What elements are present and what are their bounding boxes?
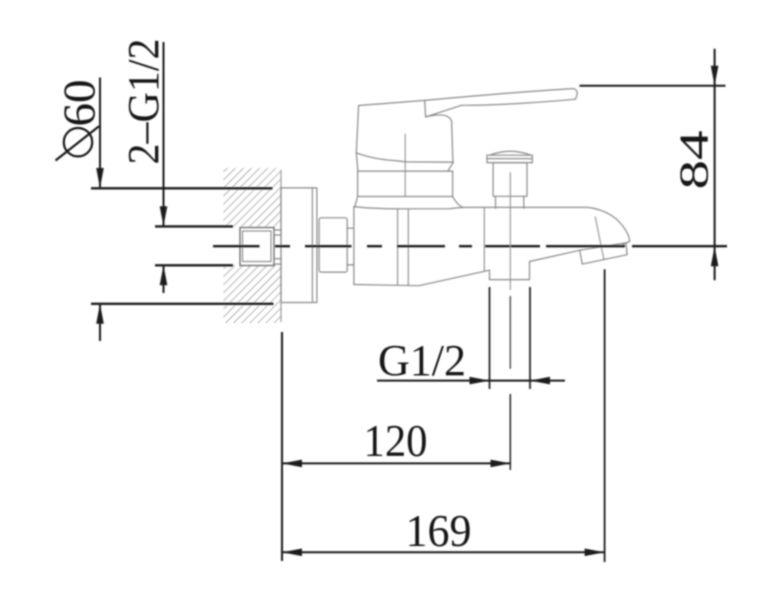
svg-text:120: 120: [364, 416, 428, 466]
svg-text:84: 84: [671, 130, 717, 189]
svg-text:60: 60: [53, 80, 104, 127]
svg-text:169: 169: [406, 505, 472, 556]
svg-text:G1/2: G1/2: [378, 336, 466, 385]
svg-text:2–G1/2: 2–G1/2: [119, 39, 168, 165]
